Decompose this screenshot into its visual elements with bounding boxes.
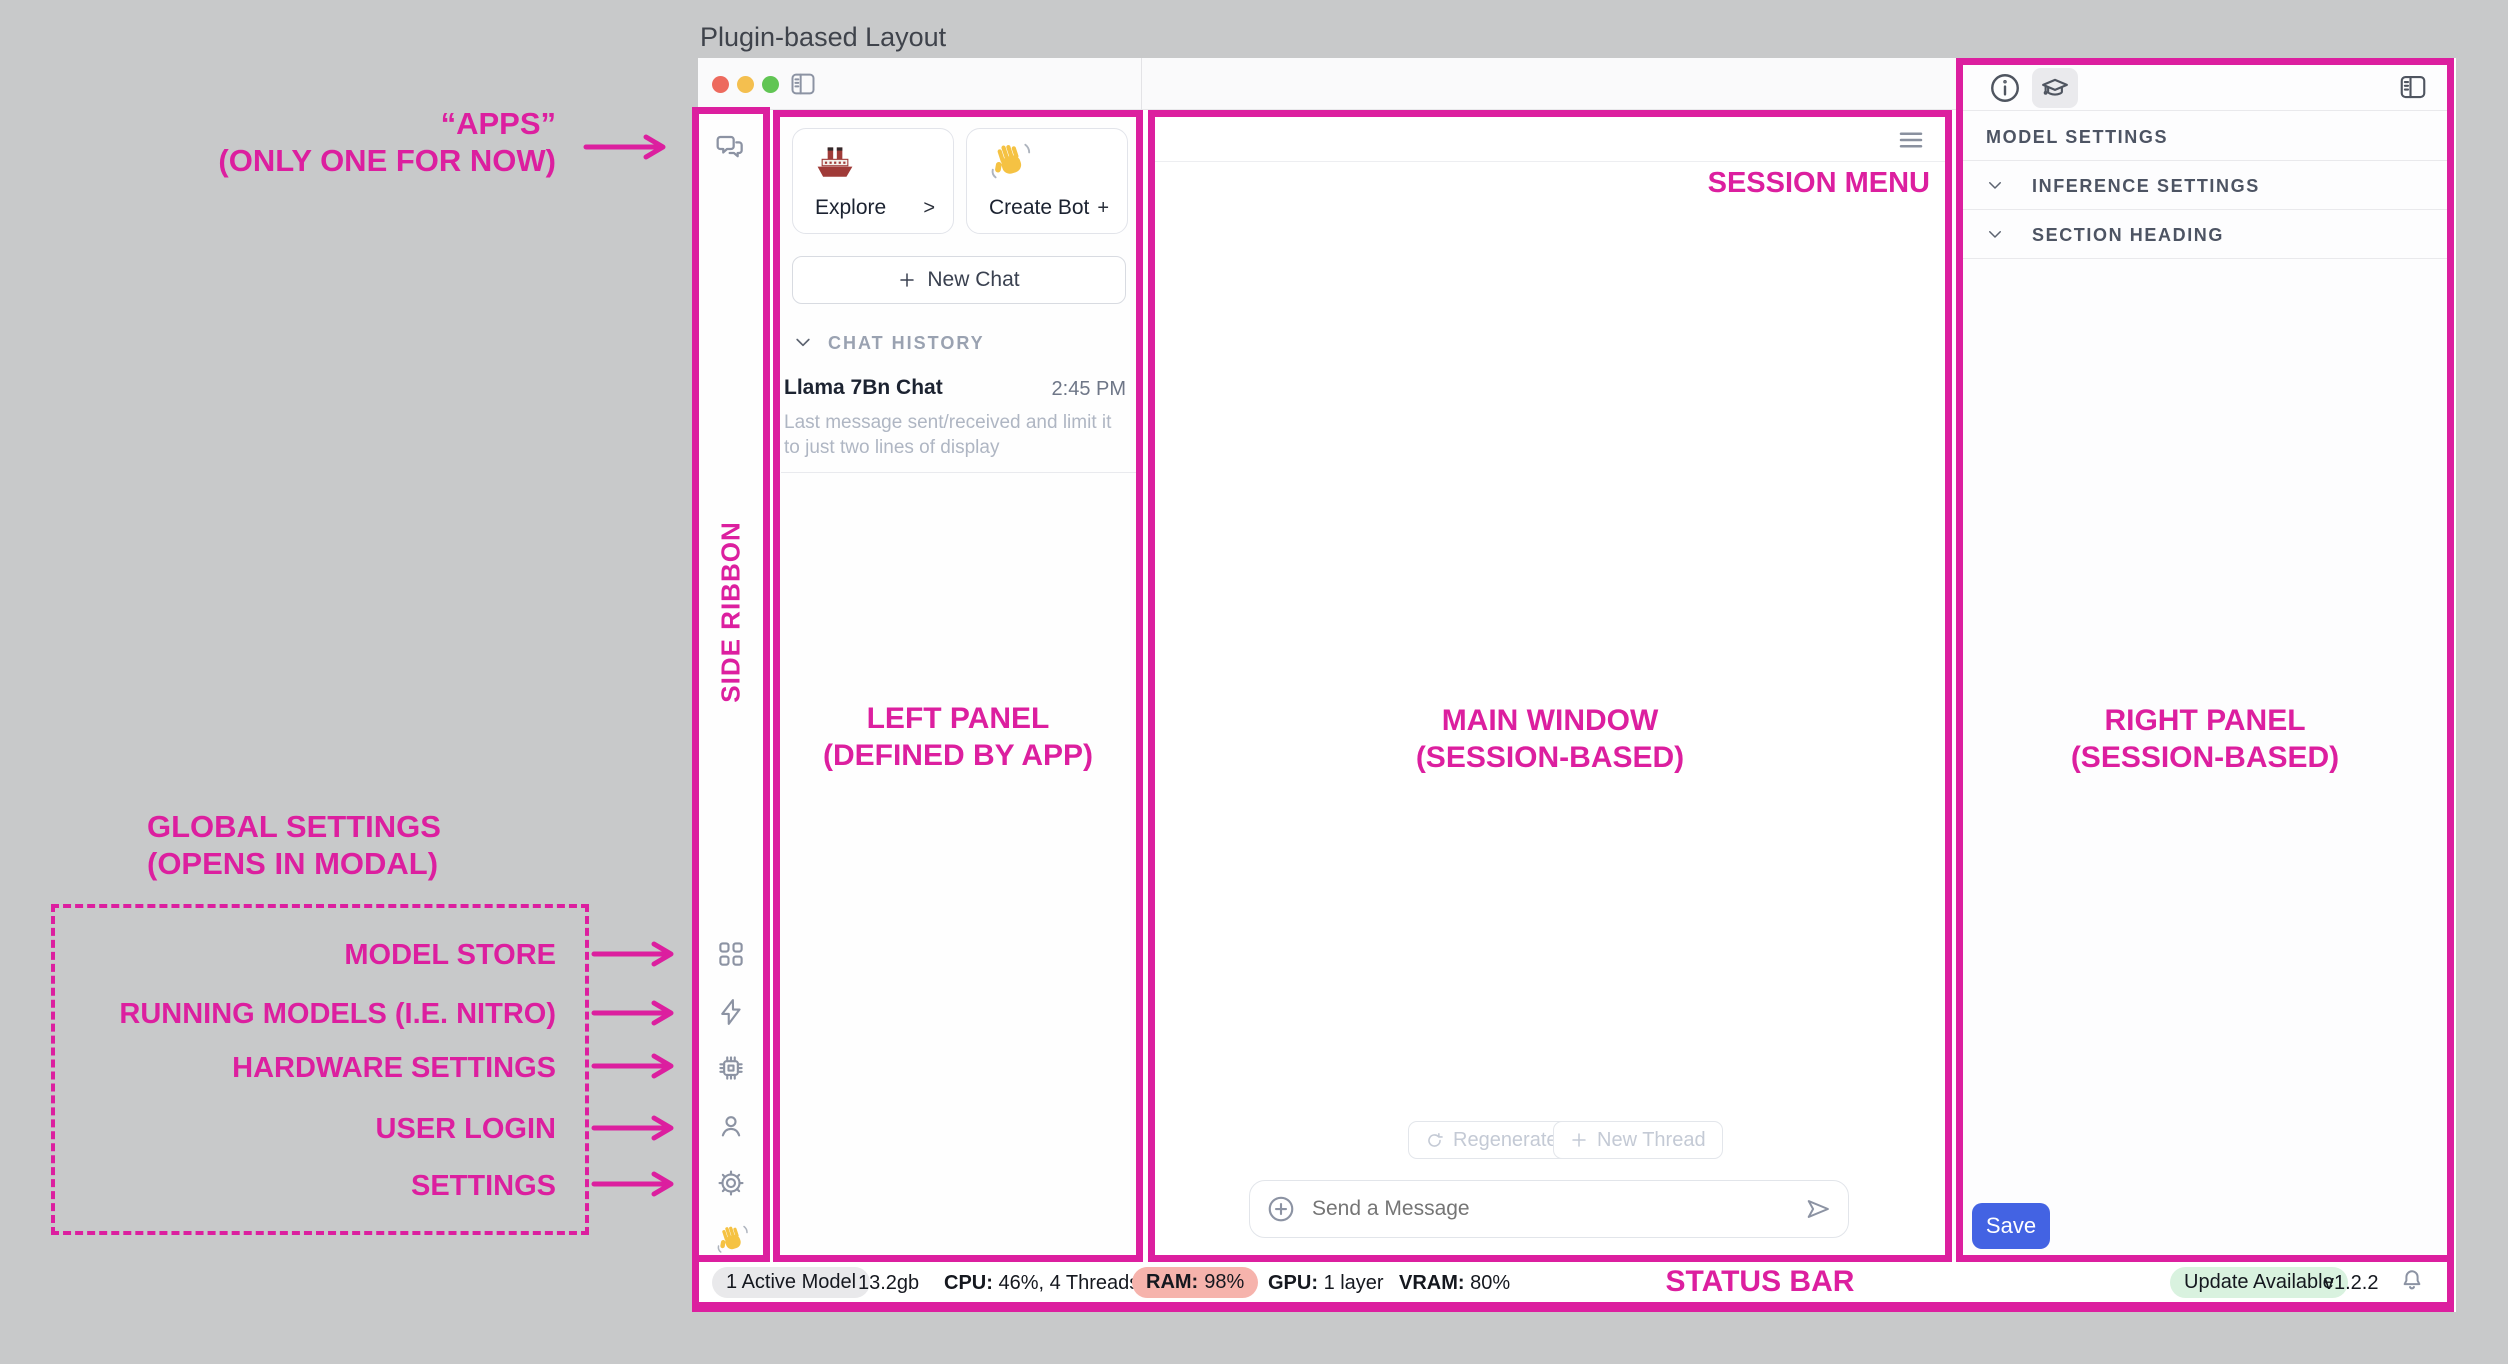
inference-settings-row[interactable]: INFERENCE SETTINGS [1963, 161, 2447, 209]
annotation-settings: SETTINGS [56, 1169, 556, 1203]
message-input[interactable] [1310, 1196, 1790, 1222]
annotation-status-bar: STATUS BAR [1650, 1264, 1870, 1299]
assistant-tab-active[interactable] [2032, 68, 2078, 108]
annotation-apps: “APPS” (ONLY ONE FOR NOW) [156, 106, 556, 179]
vram-value: 80% [1470, 1272, 1510, 1294]
annotation-model-store: MODEL STORE [56, 938, 556, 972]
settings-gear-icon[interactable] [716, 1168, 746, 1198]
send-icon[interactable] [1804, 1195, 1832, 1223]
annotation-left-panel-line1: LEFT PANEL [758, 700, 1158, 737]
annotation-main-window: MAIN WINDOW (SESSION-BASED) [1350, 702, 1750, 776]
save-button-label: Save [1986, 1213, 2036, 1239]
annotation-global-settings-line2: (OPENS IN MODAL) [147, 845, 441, 882]
annotation-left-panel: LEFT PANEL (DEFINED BY APP) [758, 700, 1158, 774]
section-heading-row[interactable]: SECTION HEADING [1963, 210, 2447, 258]
save-button[interactable]: Save [1972, 1203, 2050, 1249]
ship-emoji [813, 141, 857, 185]
create-bot-card-plus: + [1097, 197, 1109, 220]
attach-plus-circle-icon[interactable] [1266, 1194, 1296, 1224]
main-header-divider [1155, 161, 1945, 162]
traffic-light-maximize[interactable] [762, 76, 779, 93]
update-available-badge[interactable]: Update Available [2170, 1267, 2348, 1298]
wave-hand-icon[interactable] [714, 1222, 750, 1258]
hardware-settings-arrow [592, 1053, 688, 1079]
cpu-value: 46%, 4 Threads [998, 1272, 1139, 1294]
chat-history-header: CHAT HISTORY [828, 333, 985, 354]
explore-card-chevron: > [923, 197, 935, 220]
annotation-session-menu: SESSION MENU [1600, 166, 1930, 200]
annotation-main-window-line1: MAIN WINDOW [1350, 702, 1750, 739]
regenerate-label: Regenerate [1453, 1129, 1558, 1152]
active-model-text: 1 Active Model [726, 1271, 856, 1294]
titlebar-divider [1141, 58, 1142, 110]
active-model-badge: 1 Active Model [712, 1267, 870, 1298]
regenerate-button[interactable]: Regenerate [1408, 1121, 1575, 1159]
vram-status: VRAM: 80% [1399, 1272, 1510, 1295]
new-chat-label: New Chat [927, 268, 1019, 292]
annotation-left-panel-line2: (DEFINED BY APP) [758, 737, 1158, 774]
annotation-apps-line1: “APPS” [156, 106, 556, 143]
chat-item-time: 2:45 PM [1052, 378, 1126, 401]
annotation-side-ribbon: SIDE RIBBON [716, 521, 747, 702]
cpu-status: CPU: 46%, 4 Threads [944, 1272, 1139, 1295]
model-store-icon[interactable] [716, 939, 746, 969]
graduation-cap-icon [2040, 73, 2070, 103]
cpu-label: CPU: [944, 1272, 993, 1294]
new-thread-button[interactable]: New Thread [1553, 1121, 1723, 1159]
refresh-icon [1425, 1131, 1444, 1150]
create-bot-card-label: Create Bot [989, 196, 1089, 220]
update-available-text: Update Available [2184, 1271, 2334, 1294]
running-models-arrow [592, 1000, 688, 1026]
annotation-hardware-settings: HARDWARE SETTINGS [56, 1051, 556, 1085]
running-models-icon[interactable] [716, 997, 746, 1027]
gpu-value: 1 layer [1324, 1272, 1384, 1294]
chat-list-item[interactable]: Llama 7Bn Chat 2:45 PM Last message sent… [781, 370, 1136, 472]
annotation-global-settings: GLOBAL SETTINGS (OPENS IN MODAL) [147, 808, 441, 882]
traffic-light-minimize[interactable] [737, 76, 754, 93]
annotation-main-window-line2: (SESSION-BASED) [1350, 739, 1750, 776]
model-size-text: 13.2gb [858, 1272, 919, 1295]
chevron-down-icon [1986, 225, 2004, 243]
vram-label: VRAM: [1399, 1272, 1465, 1294]
chat-item-preview: Last message sent/received and limit it … [784, 410, 1132, 460]
plus-icon [898, 271, 916, 289]
explore-card[interactable]: Explore > [792, 128, 954, 234]
gpu-status: GPU: 1 layer [1268, 1272, 1384, 1295]
apps-arrow [584, 133, 680, 161]
session-menu-icon[interactable] [1896, 125, 1926, 155]
ram-label: RAM: [1146, 1271, 1198, 1294]
gpu-label: GPU: [1268, 1272, 1318, 1294]
annotation-global-settings-line1: GLOBAL SETTINGS [147, 808, 441, 845]
composer [1249, 1180, 1849, 1238]
user-login-arrow [592, 1115, 688, 1141]
right-header-divider [1963, 110, 2447, 111]
version-text: v1.2.2 [2324, 1272, 2378, 1295]
wave-hand-emoji [987, 139, 1033, 185]
chat-app-icon[interactable] [715, 131, 747, 163]
inference-settings-label: INFERENCE SETTINGS [2032, 176, 2260, 197]
new-chat-button[interactable]: New Chat [792, 256, 1126, 304]
annotation-user-login: USER LOGIN [56, 1112, 556, 1146]
chat-list-divider [781, 472, 1136, 473]
ram-value: 98% [1204, 1271, 1244, 1294]
bell-icon[interactable] [2398, 1266, 2426, 1294]
annotation-running-models: RUNNING MODELS (I.E. NITRO) [56, 997, 556, 1031]
page-title: Plugin-based Layout [700, 22, 946, 53]
info-icon[interactable] [1988, 71, 2022, 105]
annotation-right-panel: RIGHT PANEL (SESSION-BASED) [2005, 702, 2405, 776]
model-store-arrow [592, 941, 688, 967]
user-login-icon[interactable] [716, 1111, 746, 1141]
traffic-light-close[interactable] [712, 76, 729, 93]
create-bot-card[interactable]: Create Bot + [966, 128, 1128, 234]
chat-item-title: Llama 7Bn Chat [784, 376, 943, 400]
window-titlebar [698, 58, 1956, 110]
settings-arrow [592, 1171, 688, 1197]
plus-icon [1570, 1131, 1588, 1149]
sidebar-toggle-icon[interactable] [789, 70, 817, 98]
annotation-right-panel-line1: RIGHT PANEL [2005, 702, 2405, 739]
ram-status-badge: RAM: 98% [1132, 1267, 1258, 1298]
section-heading-label: SECTION HEADING [2032, 225, 2224, 246]
main-window [1148, 110, 1952, 1262]
new-thread-label: New Thread [1597, 1129, 1706, 1152]
model-settings-header: MODEL SETTINGS [1986, 127, 2168, 148]
annotation-right-panel-line2: (SESSION-BASED) [2005, 739, 2405, 776]
chat-history-chevron-icon[interactable] [793, 332, 813, 352]
hardware-settings-icon[interactable] [716, 1053, 746, 1083]
right-panel-toggle-icon[interactable] [2398, 72, 2428, 102]
window-border-bottom [692, 1302, 2454, 1312]
design-canvas: Plugin-based Layout “APPS” (ONLY ONE FOR… [0, 0, 2508, 1364]
explore-card-label: Explore [815, 196, 886, 220]
annotation-apps-line2: (ONLY ONE FOR NOW) [156, 143, 556, 180]
chevron-down-icon [1986, 176, 2004, 194]
right-row-divider-3 [1963, 258, 2447, 259]
